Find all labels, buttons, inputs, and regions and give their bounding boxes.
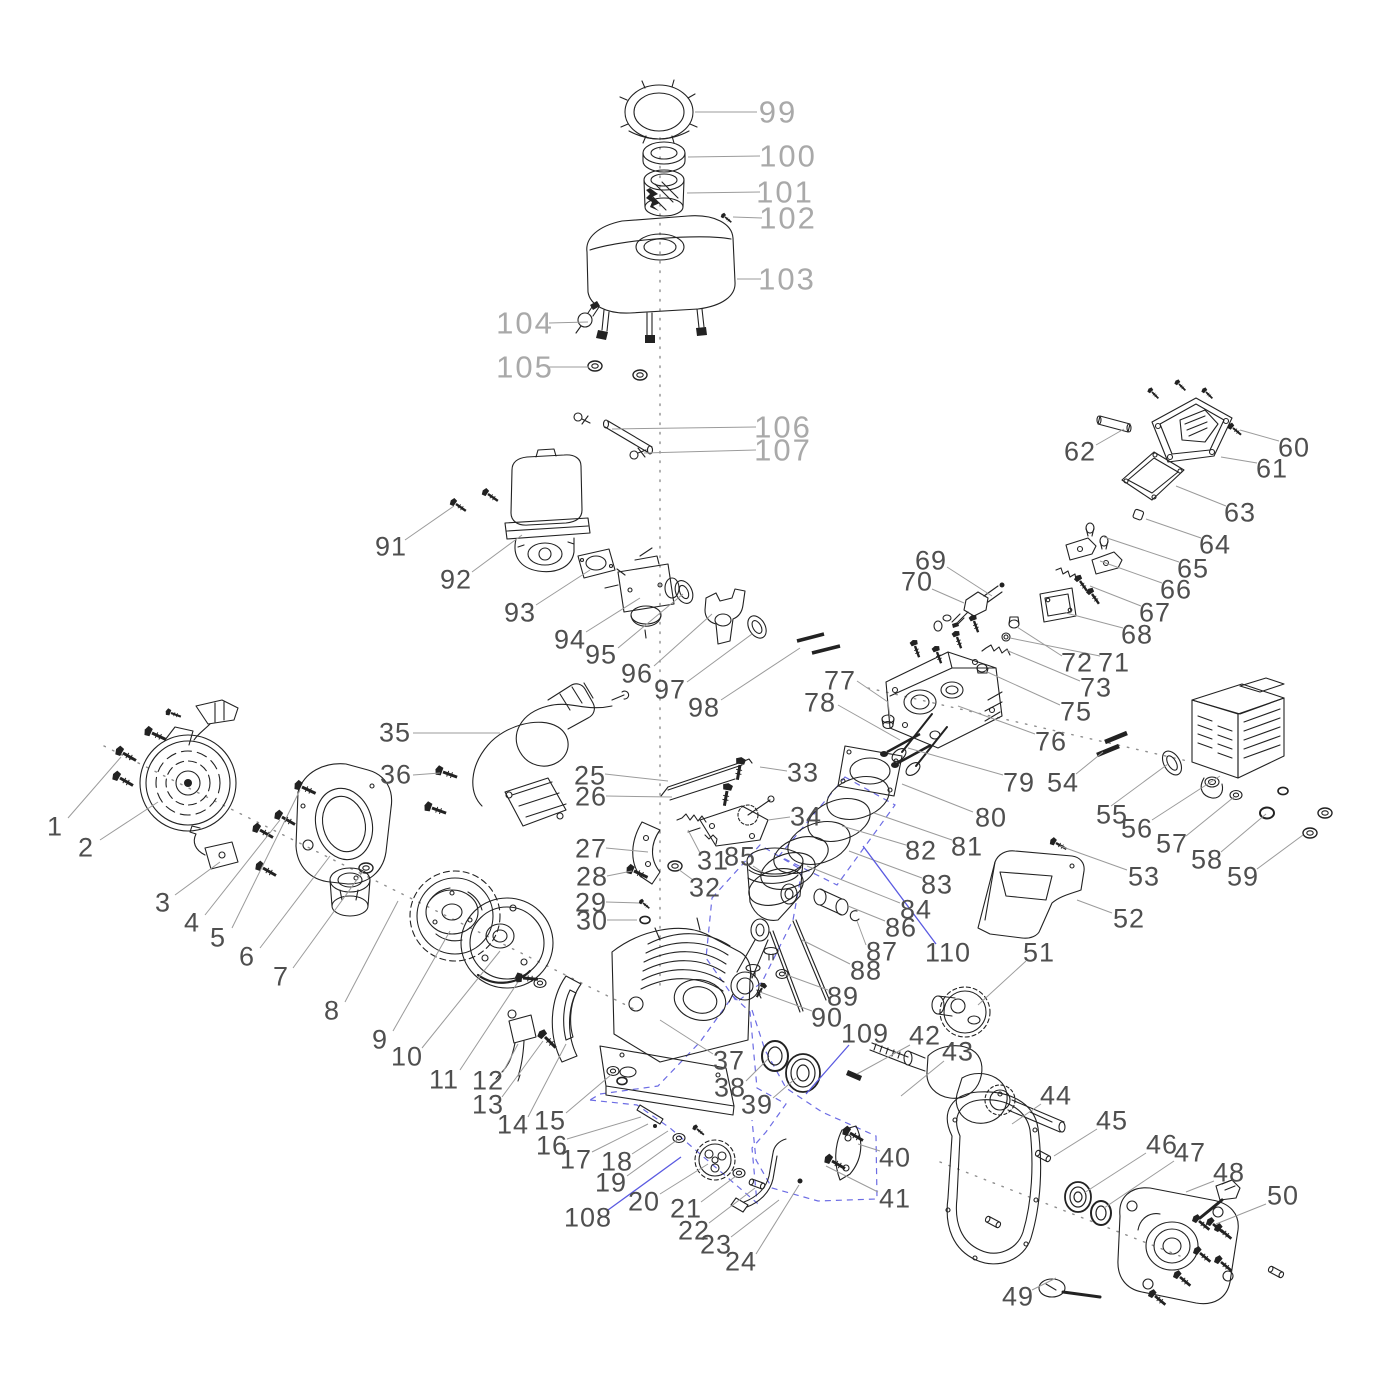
part-number-50: 50 bbox=[1267, 1183, 1299, 1210]
part-number-58: 58 bbox=[1191, 847, 1223, 874]
part-number-30: 30 bbox=[576, 908, 608, 935]
part-number-2: 2 bbox=[78, 835, 94, 862]
part-number-107: 107 bbox=[754, 435, 812, 466]
part-number-94: 94 bbox=[554, 627, 586, 654]
part-number-93: 93 bbox=[504, 600, 536, 627]
part-number-52: 52 bbox=[1113, 906, 1145, 933]
part-number-59: 59 bbox=[1227, 864, 1259, 891]
part-number-43: 43 bbox=[942, 1039, 974, 1066]
part-number-11: 11 bbox=[429, 1067, 459, 1094]
part-number-102: 102 bbox=[759, 203, 817, 234]
part-number-91: 91 bbox=[375, 534, 407, 561]
part-number-78: 78 bbox=[804, 690, 836, 717]
part-number-14: 14 bbox=[497, 1112, 529, 1139]
part-number-28: 28 bbox=[576, 864, 608, 891]
part-number-37: 37 bbox=[713, 1048, 745, 1075]
part-number-24: 24 bbox=[725, 1249, 757, 1276]
part-number-103: 103 bbox=[758, 264, 816, 295]
part-number-82: 82 bbox=[905, 838, 937, 865]
part-number-76: 76 bbox=[1035, 729, 1067, 756]
part-number-62: 62 bbox=[1064, 439, 1096, 466]
part-number-44: 44 bbox=[1040, 1083, 1072, 1110]
part-number-95: 95 bbox=[585, 642, 617, 669]
part-number-7: 7 bbox=[273, 964, 289, 991]
part-number-1: 1 bbox=[47, 814, 63, 841]
part-number-96: 96 bbox=[621, 661, 653, 688]
part-number-80: 80 bbox=[975, 805, 1007, 832]
part-number-98: 98 bbox=[688, 695, 720, 722]
part-number-79: 79 bbox=[1003, 770, 1035, 797]
part-number-92: 92 bbox=[440, 567, 472, 594]
part-number-49: 49 bbox=[1002, 1284, 1034, 1311]
part-number-88: 88 bbox=[850, 958, 882, 985]
part-number-57: 57 bbox=[1156, 831, 1188, 858]
part-number-27: 27 bbox=[575, 836, 607, 863]
part-number-20: 20 bbox=[628, 1189, 660, 1216]
part-number-48: 48 bbox=[1213, 1160, 1245, 1187]
part-number-85: 85 bbox=[724, 844, 756, 871]
part-number-105: 105 bbox=[496, 352, 554, 383]
part-number-labels: 1234567891011121314151617181920212223242… bbox=[0, 0, 1399, 1399]
part-number-19: 19 bbox=[595, 1170, 627, 1197]
part-number-47: 47 bbox=[1174, 1140, 1206, 1167]
part-number-41: 41 bbox=[879, 1186, 911, 1213]
part-number-5: 5 bbox=[210, 925, 226, 952]
part-number-104: 104 bbox=[496, 308, 554, 339]
part-number-108: 108 bbox=[564, 1205, 612, 1232]
part-number-10: 10 bbox=[391, 1044, 423, 1071]
part-number-61: 61 bbox=[1256, 456, 1288, 483]
part-number-81: 81 bbox=[951, 834, 983, 861]
part-number-4: 4 bbox=[184, 910, 200, 937]
part-number-9: 9 bbox=[372, 1027, 388, 1054]
part-number-56: 56 bbox=[1121, 816, 1153, 843]
part-number-17: 17 bbox=[560, 1147, 592, 1174]
part-number-36: 36 bbox=[380, 762, 412, 789]
part-number-39: 39 bbox=[741, 1092, 773, 1119]
part-number-68: 68 bbox=[1121, 622, 1153, 649]
part-number-51: 51 bbox=[1023, 940, 1055, 967]
part-number-42: 42 bbox=[909, 1023, 941, 1050]
part-number-99: 99 bbox=[759, 97, 797, 128]
part-number-70: 70 bbox=[901, 569, 933, 596]
part-number-110: 110 bbox=[925, 940, 971, 967]
part-number-45: 45 bbox=[1096, 1108, 1128, 1135]
part-number-6: 6 bbox=[239, 944, 255, 971]
part-number-90: 90 bbox=[811, 1005, 843, 1032]
part-number-33: 33 bbox=[787, 760, 819, 787]
part-number-3: 3 bbox=[155, 890, 171, 917]
part-number-35: 35 bbox=[379, 720, 411, 747]
part-number-8: 8 bbox=[324, 998, 340, 1025]
part-number-34: 34 bbox=[790, 804, 822, 831]
part-number-75: 75 bbox=[1060, 699, 1092, 726]
part-number-109: 109 bbox=[841, 1021, 889, 1048]
part-number-32: 32 bbox=[689, 875, 721, 902]
part-number-26: 26 bbox=[575, 784, 607, 811]
part-number-100: 100 bbox=[759, 141, 817, 172]
exploded-parts-diagram: 1234567891011121314151617181920212223242… bbox=[0, 0, 1399, 1399]
part-number-53: 53 bbox=[1128, 864, 1160, 891]
part-number-97: 97 bbox=[654, 677, 686, 704]
part-number-63: 63 bbox=[1224, 500, 1256, 527]
part-number-54: 54 bbox=[1047, 770, 1079, 797]
part-number-40: 40 bbox=[879, 1145, 911, 1172]
